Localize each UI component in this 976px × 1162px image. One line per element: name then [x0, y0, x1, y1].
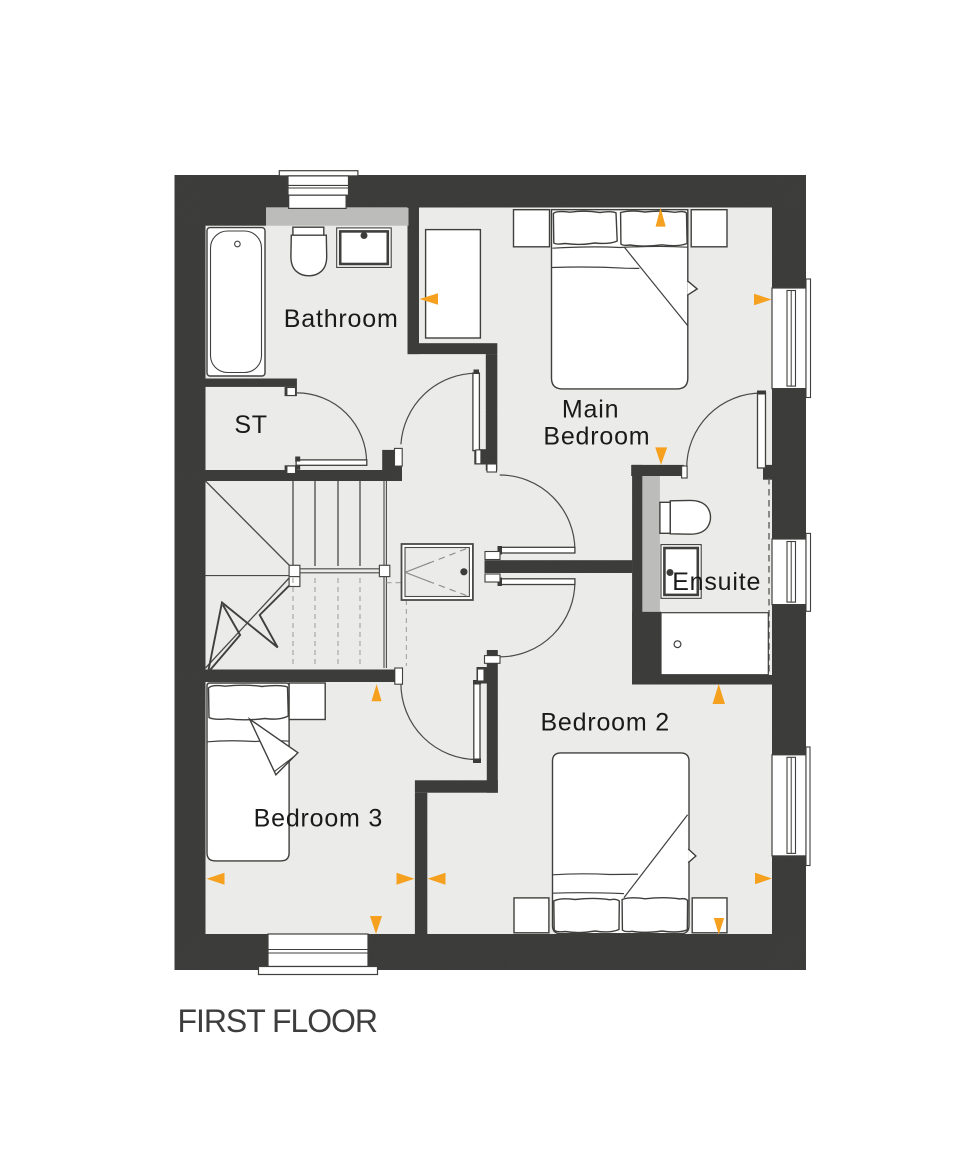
svg-text:FIRST FLOOR: FIRST FLOOR [178, 1003, 377, 1039]
svg-text:Bedroom 3: Bedroom 3 [254, 805, 384, 833]
svg-text:Bedroom: Bedroom [543, 423, 650, 451]
svg-text:Bedroom 2: Bedroom 2 [540, 709, 670, 737]
svg-text:Main: Main [562, 396, 619, 424]
svg-text:Ensuite: Ensuite [672, 568, 761, 596]
svg-text:ST: ST [234, 411, 268, 439]
svg-text:Bathroom: Bathroom [284, 305, 399, 333]
